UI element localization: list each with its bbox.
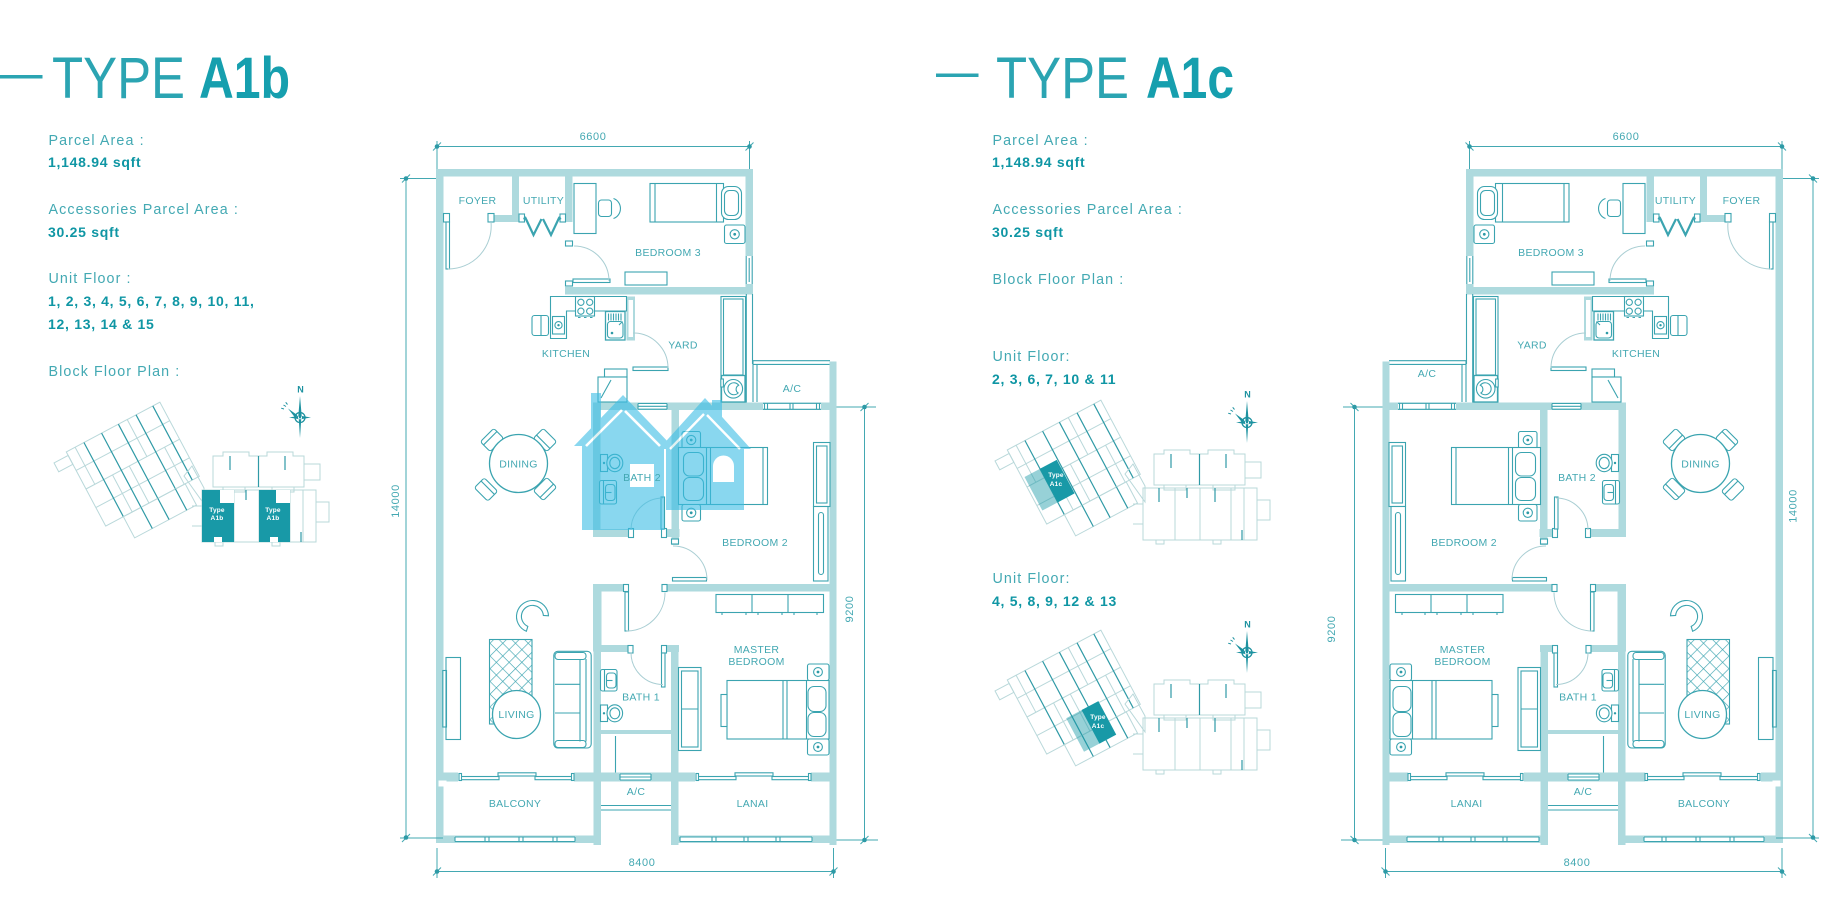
svg-text:Unit Floor:: Unit Floor: xyxy=(993,349,1071,365)
svg-text:BALCONY: BALCONY xyxy=(1678,798,1730,810)
svg-text:BALCONY: BALCONY xyxy=(489,798,541,810)
svg-text:A/C: A/C xyxy=(627,786,646,798)
svg-text:Parcel Area :: Parcel Area : xyxy=(49,133,145,149)
svg-text:1, 2, 3, 4, 5, 6, 7, 8, 9, 10,: 1, 2, 3, 4, 5, 6, 7, 8, 9, 10, 11, xyxy=(48,293,255,309)
svg-text:Block Floor Plan :: Block Floor Plan : xyxy=(49,364,181,380)
svg-text:DINING: DINING xyxy=(499,459,538,471)
svg-text:Type: Type xyxy=(1090,714,1106,721)
svg-text:LANAI: LANAI xyxy=(1451,798,1483,810)
svg-text:BATH 1: BATH 1 xyxy=(1559,692,1597,704)
svg-text:9200: 9200 xyxy=(844,596,856,623)
svg-text:FOYER: FOYER xyxy=(459,195,497,207)
svg-text:14000: 14000 xyxy=(390,484,402,518)
svg-text:KITCHEN: KITCHEN xyxy=(1612,348,1660,360)
svg-text:A1c: A1c xyxy=(1092,723,1105,730)
svg-text:A1c: A1c xyxy=(1146,46,1234,111)
svg-text:A1b: A1b xyxy=(211,515,224,522)
svg-text:Unit Floor:: Unit Floor: xyxy=(993,571,1071,587)
svg-text:BEDROOM 3: BEDROOM 3 xyxy=(635,247,701,259)
svg-text:1,148.94 sqft: 1,148.94 sqft xyxy=(48,154,141,170)
svg-text:A/C: A/C xyxy=(1418,368,1437,380)
svg-text:A/C: A/C xyxy=(783,383,802,395)
svg-text:KITCHEN: KITCHEN xyxy=(542,348,590,360)
svg-text:FOYER: FOYER xyxy=(1723,195,1761,207)
svg-text:LIVING: LIVING xyxy=(498,709,534,721)
svg-text:30.25 sqft: 30.25 sqft xyxy=(48,224,120,240)
svg-text:BEDROOM 2: BEDROOM 2 xyxy=(722,537,788,549)
svg-text:UTILITY: UTILITY xyxy=(1655,195,1696,207)
svg-text:YARD: YARD xyxy=(668,340,698,352)
svg-text:Accessories Parcel Area :: Accessories Parcel Area : xyxy=(49,202,239,218)
svg-text:A1b: A1b xyxy=(267,515,280,522)
svg-text:BEDROOM 3: BEDROOM 3 xyxy=(1518,247,1584,259)
svg-text:A1c: A1c xyxy=(1050,481,1063,488)
svg-text:30.25 sqft: 30.25 sqft xyxy=(992,224,1064,240)
svg-text:Accessories Parcel Area :: Accessories Parcel Area : xyxy=(993,202,1183,218)
svg-text:8400: 8400 xyxy=(629,857,656,869)
svg-text:BEDROOM 2: BEDROOM 2 xyxy=(1431,537,1497,549)
svg-text:UTILITY: UTILITY xyxy=(523,195,564,207)
svg-text:Unit Floor :: Unit Floor : xyxy=(49,271,132,287)
svg-text:BEDROOM: BEDROOM xyxy=(728,656,784,668)
svg-text:BATH 2: BATH 2 xyxy=(623,472,661,484)
svg-text:6600: 6600 xyxy=(580,131,607,143)
svg-text:1,148.94 sqft: 1,148.94 sqft xyxy=(992,154,1085,170)
svg-text:Type: Type xyxy=(1048,472,1064,479)
svg-text:LANAI: LANAI xyxy=(737,798,769,810)
svg-text:LIVING: LIVING xyxy=(1684,709,1720,721)
svg-text:BEDROOM: BEDROOM xyxy=(1434,656,1490,668)
svg-text:9200: 9200 xyxy=(1326,616,1338,643)
svg-text:6600: 6600 xyxy=(1613,131,1640,143)
svg-text:MASTER: MASTER xyxy=(1440,644,1486,656)
svg-text:14000: 14000 xyxy=(1788,489,1800,523)
svg-text:BATH 2: BATH 2 xyxy=(1558,472,1596,484)
svg-text:BATH 1: BATH 1 xyxy=(622,692,660,704)
svg-text:2, 3, 6, 7, 10 & 11: 2, 3, 6, 7, 10 & 11 xyxy=(992,371,1116,387)
svg-text:Block Floor Plan :: Block Floor Plan : xyxy=(993,272,1125,288)
svg-text:TYPE: TYPE xyxy=(52,46,185,111)
svg-text:8400: 8400 xyxy=(1564,857,1591,869)
svg-text:DINING: DINING xyxy=(1681,459,1720,471)
svg-text:A/C: A/C xyxy=(1574,786,1593,798)
svg-text:YARD: YARD xyxy=(1517,340,1547,352)
svg-text:Type: Type xyxy=(209,507,225,514)
svg-text:4, 5, 8, 9, 12 & 13: 4, 5, 8, 9, 12 & 13 xyxy=(992,593,1117,609)
svg-text:Parcel Area :: Parcel Area : xyxy=(993,133,1089,149)
svg-text:MASTER: MASTER xyxy=(734,644,780,656)
svg-text:TYPE: TYPE xyxy=(996,46,1129,111)
svg-text:12, 13, 14 & 15: 12, 13, 14 & 15 xyxy=(48,316,155,332)
svg-text:Type: Type xyxy=(265,507,281,514)
svg-text:A1b: A1b xyxy=(199,46,290,111)
